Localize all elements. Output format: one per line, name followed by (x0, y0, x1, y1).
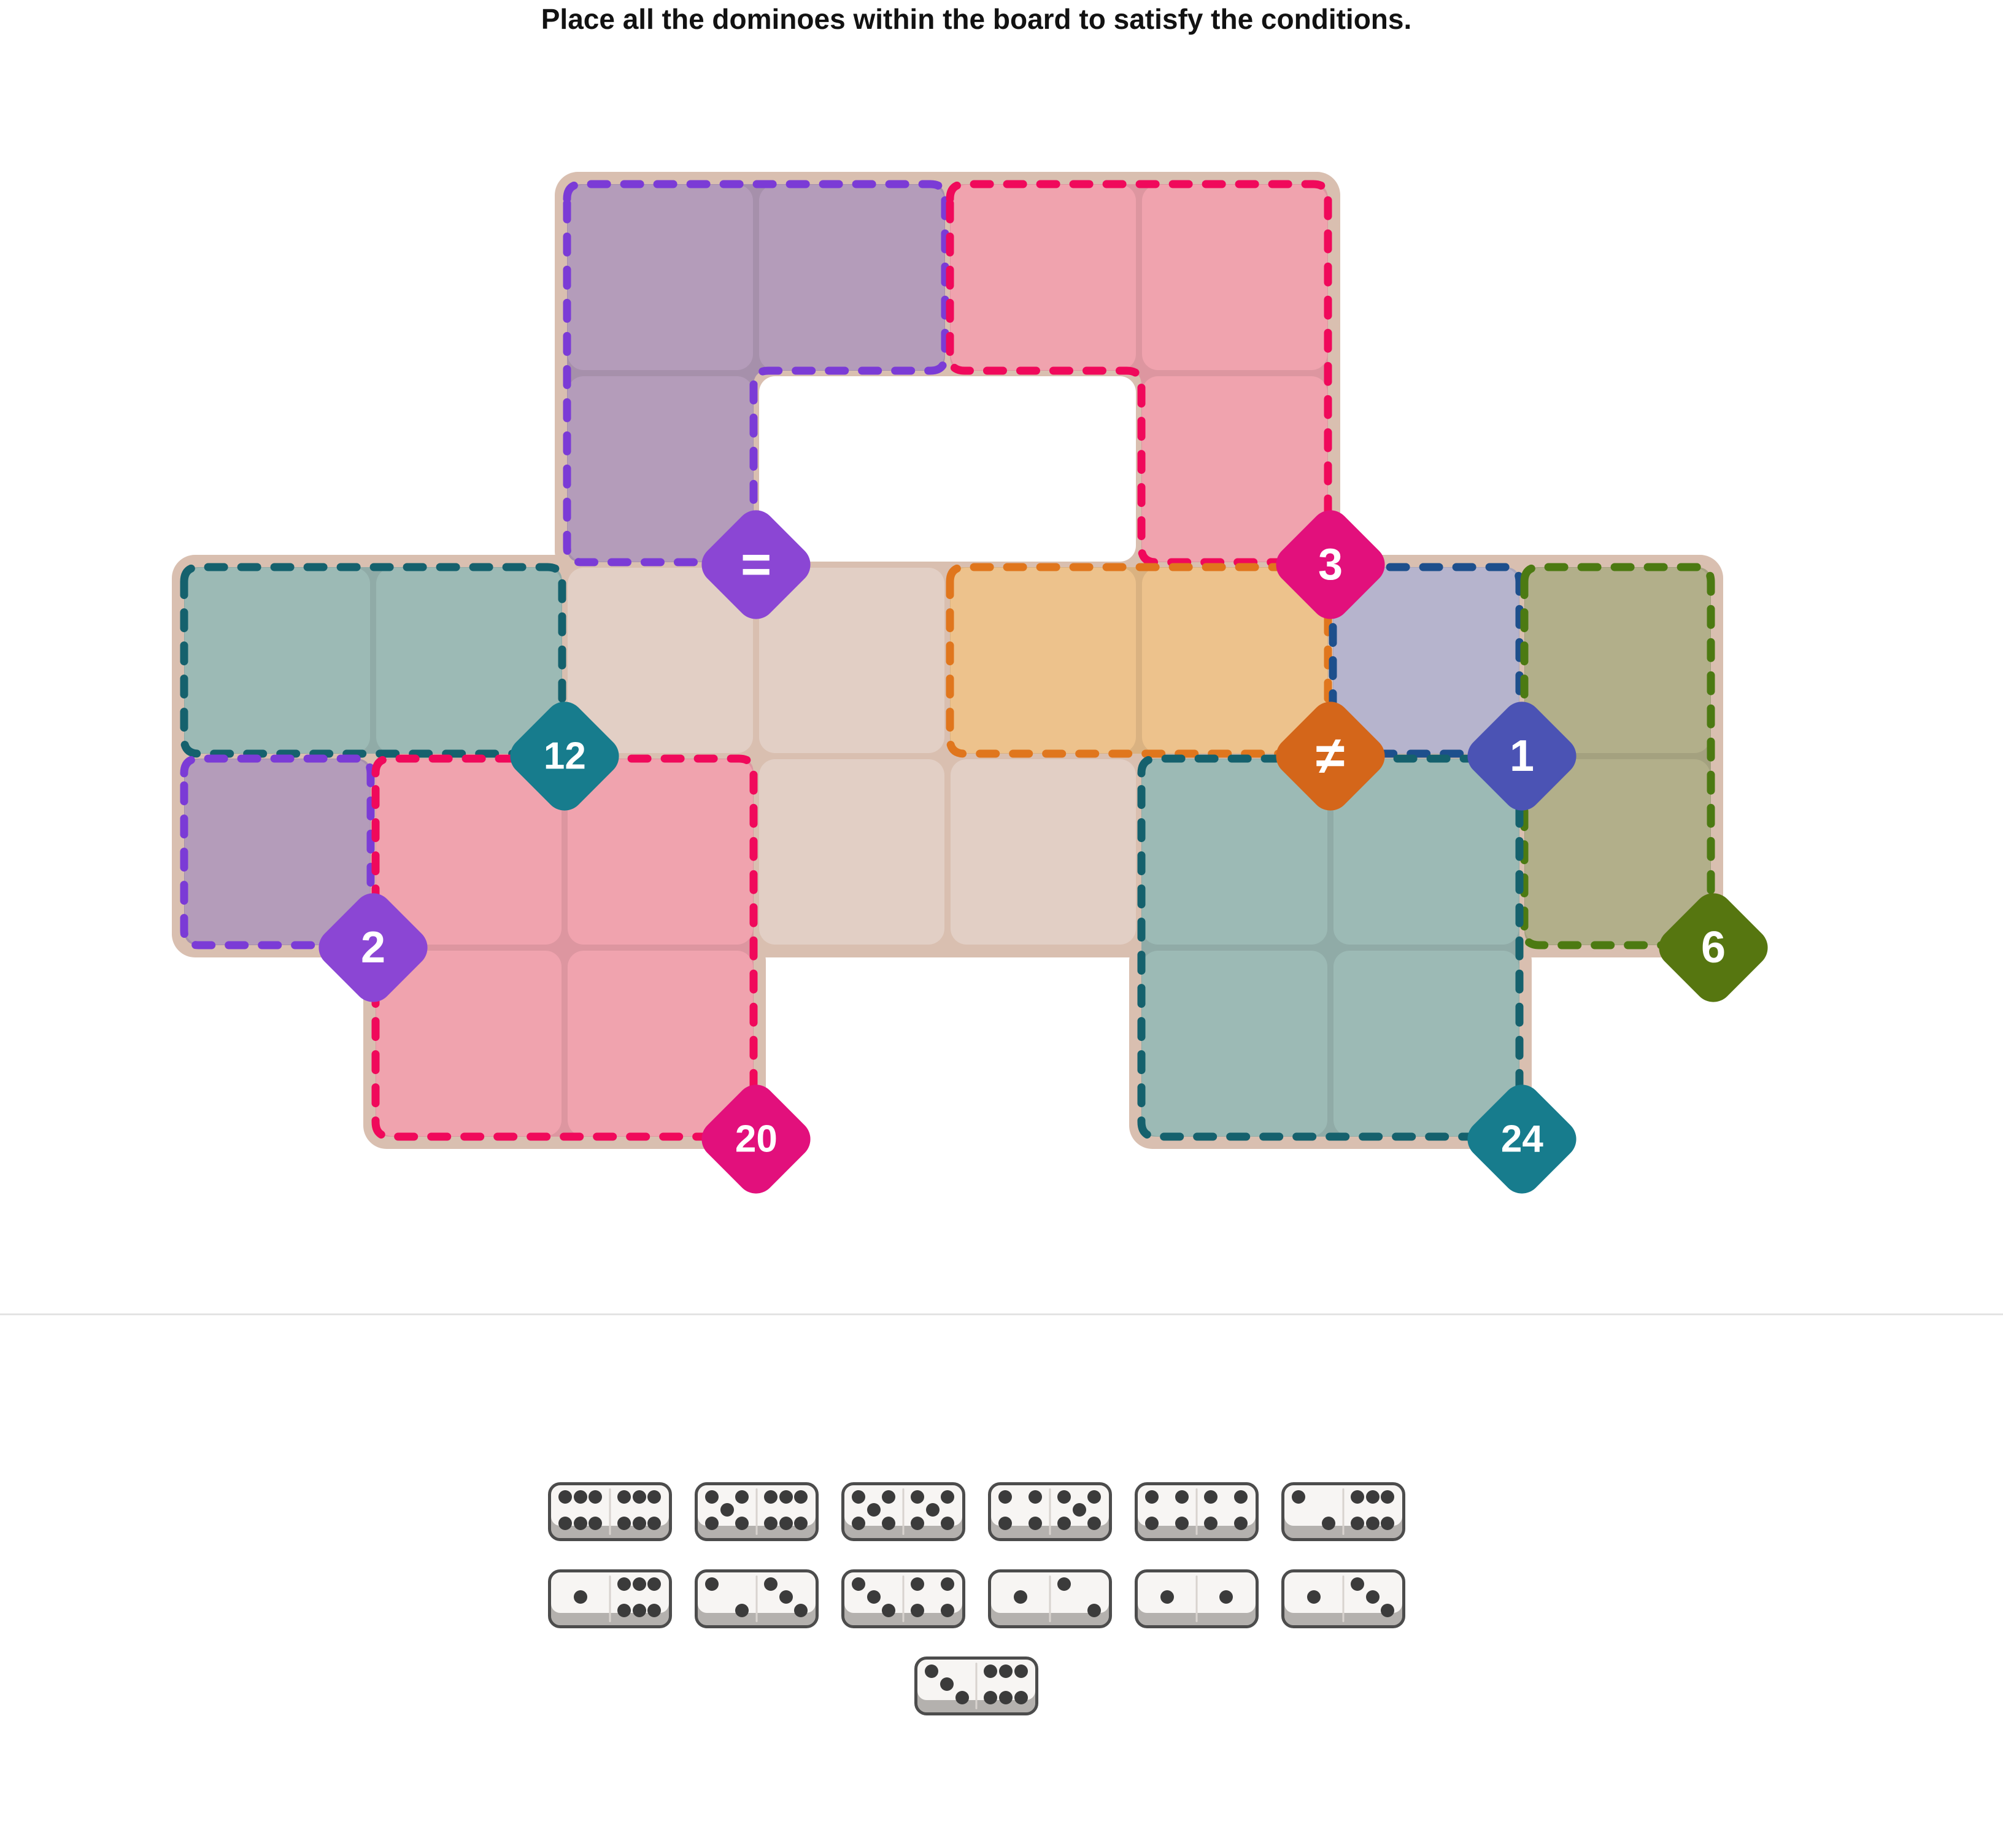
pip (1204, 1490, 1218, 1504)
pip (1145, 1490, 1159, 1504)
pip (1366, 1490, 1380, 1504)
pip (1014, 1664, 1028, 1678)
pip (764, 1490, 778, 1504)
pip (764, 1517, 778, 1530)
pip (705, 1517, 719, 1530)
domino-half (903, 1485, 962, 1538)
pip (852, 1490, 865, 1504)
domino-half (991, 1485, 1050, 1538)
pip (1057, 1577, 1071, 1591)
pip (705, 1490, 719, 1504)
pip (998, 1517, 1012, 1530)
domino-2-6[interactable] (1281, 1482, 1405, 1541)
pip (617, 1490, 631, 1504)
pip (764, 1577, 778, 1591)
domino-half (917, 1660, 976, 1712)
domino-center-line (609, 1575, 611, 1622)
domino-5-5[interactable] (841, 1482, 965, 1541)
board-hole (759, 376, 1136, 562)
domino-half (1343, 1572, 1402, 1625)
domino-half (1050, 1485, 1109, 1538)
pip (574, 1490, 587, 1504)
pip (794, 1490, 808, 1504)
condition-badge-label: 6 (1701, 926, 1726, 970)
pip (1057, 1490, 1071, 1504)
pip (1087, 1604, 1101, 1617)
domino-half (698, 1572, 757, 1625)
domino-half (844, 1572, 903, 1625)
pip (1292, 1490, 1305, 1504)
pip (926, 1503, 940, 1517)
domino-tray (0, 1482, 1953, 1715)
pip (1175, 1490, 1189, 1504)
pip (867, 1503, 881, 1517)
pip (911, 1577, 924, 1591)
domino-center-line (1195, 1488, 1197, 1535)
pip (882, 1490, 895, 1504)
domino-half (1197, 1572, 1256, 1625)
pip (998, 1490, 1012, 1504)
board-cell[interactable] (951, 759, 1136, 945)
board-svg (0, 0, 2003, 1295)
board-cell[interactable] (1142, 185, 1327, 370)
domino-center-line (755, 1488, 757, 1535)
puzzle-stage: Place all the dominoes within the board … (0, 0, 2003, 1848)
pip (1087, 1517, 1101, 1530)
pip (925, 1664, 938, 1678)
pip (647, 1517, 661, 1530)
pip (852, 1577, 865, 1591)
pip (1351, 1490, 1364, 1504)
domino-half (1284, 1572, 1343, 1625)
pip (1160, 1590, 1174, 1604)
pip (911, 1517, 924, 1530)
domino-center-line (1342, 1488, 1344, 1535)
pip (617, 1517, 631, 1530)
condition-badge-label: 2 (361, 926, 385, 970)
domino-half (1197, 1485, 1256, 1538)
domino-center-line (609, 1488, 611, 1535)
domino-3-4[interactable] (841, 1569, 965, 1628)
pip (1381, 1490, 1394, 1504)
board: =312≠1622024 (0, 0, 2003, 1295)
pip (735, 1517, 749, 1530)
pip (940, 1677, 954, 1691)
pip (1351, 1577, 1364, 1591)
pip (999, 1664, 1013, 1678)
pip (941, 1604, 954, 1617)
pip (1234, 1490, 1248, 1504)
domino-center-line (1049, 1575, 1051, 1622)
pip (794, 1604, 808, 1617)
domino-center-line (755, 1575, 757, 1622)
domino-half (991, 1572, 1050, 1625)
pip (779, 1490, 793, 1504)
domino-row (914, 1657, 1038, 1715)
pip (647, 1577, 661, 1591)
domino-half (757, 1572, 816, 1625)
pip (1307, 1590, 1321, 1604)
condition-badge-label: 12 (544, 737, 586, 775)
domino-half (1138, 1485, 1197, 1538)
domino-half (698, 1485, 757, 1538)
domino-center-line (1195, 1575, 1197, 1622)
pip (735, 1604, 749, 1617)
board-cell[interactable] (759, 185, 944, 370)
board-cell[interactable] (185, 568, 370, 753)
condition-badge-label: 1 (1510, 734, 1534, 778)
board-cell[interactable] (1142, 951, 1327, 1136)
board-cell[interactable] (568, 185, 753, 370)
section-divider (0, 1313, 2003, 1315)
pip (984, 1691, 997, 1704)
pip (1366, 1517, 1380, 1530)
pip (1014, 1691, 1028, 1704)
pip (617, 1577, 631, 1591)
domino-half (903, 1572, 962, 1625)
pip (1014, 1590, 1027, 1604)
domino-row (548, 1569, 1405, 1628)
pip (633, 1577, 646, 1591)
pip (882, 1517, 895, 1530)
pip (647, 1490, 661, 1504)
pip (1204, 1517, 1218, 1530)
domino-half (757, 1485, 816, 1538)
board-cell[interactable] (759, 759, 944, 945)
pip (1322, 1517, 1335, 1530)
pip (1145, 1517, 1159, 1530)
pip (941, 1517, 954, 1530)
domino-1-1[interactable] (1135, 1569, 1259, 1628)
board-cell[interactable] (951, 185, 1136, 370)
pip (647, 1604, 661, 1617)
pip (589, 1490, 602, 1504)
pip (574, 1517, 587, 1530)
pip (589, 1517, 602, 1530)
pip (1219, 1590, 1233, 1604)
pip (941, 1577, 954, 1591)
domino-half (610, 1485, 669, 1538)
pip (911, 1490, 924, 1504)
pip (1175, 1517, 1189, 1530)
domino-1-6[interactable] (548, 1569, 672, 1628)
pip (984, 1664, 997, 1678)
pip (882, 1604, 895, 1617)
pip (941, 1490, 954, 1504)
pip (720, 1503, 734, 1517)
condition-badge-label: = (741, 538, 771, 591)
domino-half (1284, 1485, 1343, 1538)
condition-badge-label: 3 (1318, 543, 1343, 587)
pip (633, 1517, 646, 1530)
domino-half (551, 1485, 610, 1538)
domino-half (551, 1572, 610, 1625)
pip (633, 1604, 646, 1617)
domino-half (1343, 1485, 1402, 1538)
pip (1029, 1517, 1042, 1530)
domino-6-6[interactable] (548, 1482, 672, 1541)
domino-4-5[interactable] (988, 1482, 1112, 1541)
domino-half (1138, 1572, 1197, 1625)
pip (574, 1590, 587, 1604)
domino-half (844, 1485, 903, 1538)
pip (955, 1691, 969, 1704)
condition-badge-label: 20 (735, 1120, 778, 1158)
domino-4-4[interactable] (1135, 1482, 1259, 1541)
pip (735, 1490, 749, 1504)
condition-badge-label: ≠ (1316, 730, 1345, 783)
domino-half (976, 1660, 1035, 1712)
domino-center-line (902, 1575, 904, 1622)
pip (1381, 1604, 1394, 1617)
pip (867, 1590, 881, 1604)
domino-center-line (902, 1488, 904, 1535)
domino-half (610, 1572, 669, 1625)
domino-row (548, 1482, 1405, 1541)
domino-1-2[interactable] (988, 1569, 1112, 1628)
domino-center-line (976, 1663, 978, 1709)
pip (705, 1577, 719, 1591)
pip (1381, 1517, 1394, 1530)
pip (1073, 1503, 1086, 1517)
domino-center-line (1342, 1575, 1344, 1622)
domino-3-6[interactable] (914, 1657, 1038, 1715)
pip (617, 1604, 631, 1617)
pip (779, 1590, 793, 1604)
pip (1351, 1517, 1364, 1530)
pip (1057, 1517, 1071, 1530)
pip (1029, 1490, 1042, 1504)
pip (911, 1604, 924, 1617)
pip (558, 1490, 572, 1504)
domino-1-3[interactable] (1281, 1569, 1405, 1628)
domino-5-6[interactable] (695, 1482, 819, 1541)
pip (999, 1691, 1013, 1704)
domino-2-3[interactable] (695, 1569, 819, 1628)
pip (852, 1517, 865, 1530)
pip (1234, 1517, 1248, 1530)
domino-center-line (1049, 1488, 1051, 1535)
pip (1366, 1590, 1380, 1604)
domino-half (1050, 1572, 1109, 1625)
condition-badge-label: 24 (1501, 1120, 1543, 1158)
board-cell[interactable] (951, 568, 1136, 753)
pip (633, 1490, 646, 1504)
pip (779, 1517, 793, 1530)
pip (1087, 1490, 1101, 1504)
pip (794, 1517, 808, 1530)
pip (558, 1517, 572, 1530)
